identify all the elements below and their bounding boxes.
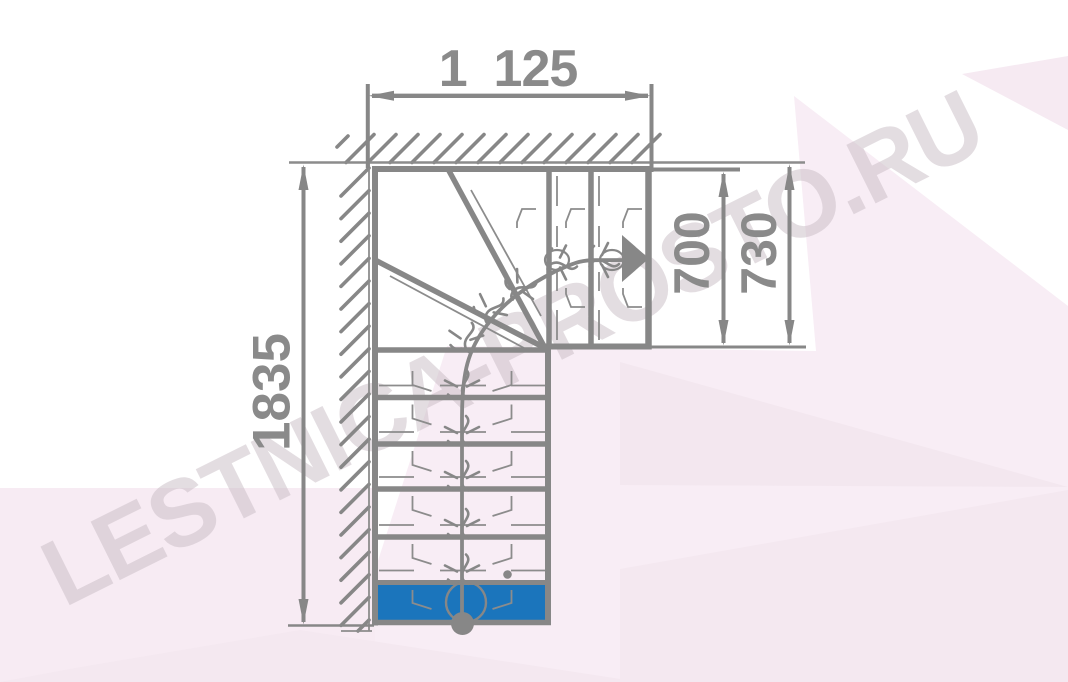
svg-text:1 125: 1 125 — [439, 40, 578, 98]
svg-text:730: 730 — [731, 211, 787, 294]
svg-text:700: 700 — [664, 211, 720, 294]
svg-text:1835: 1835 — [243, 333, 302, 451]
